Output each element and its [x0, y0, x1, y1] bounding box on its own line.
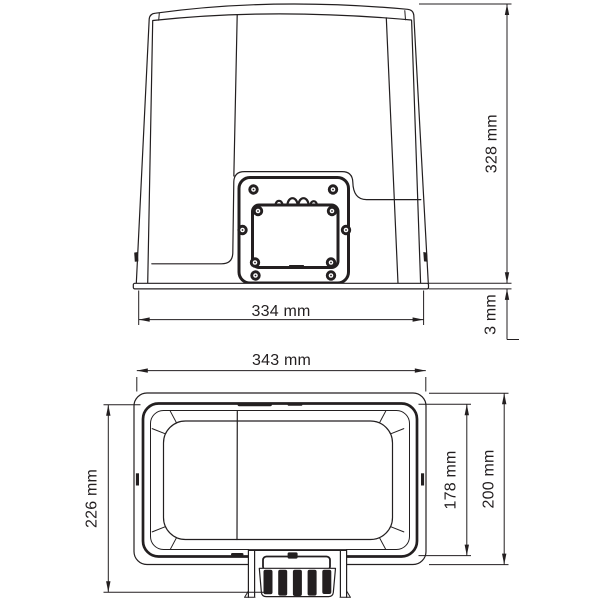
- dim-base-thickness: 3 mm: [429, 289, 520, 340]
- arrow-down-icon: [505, 272, 509, 283]
- screw-icon: [250, 270, 260, 280]
- screw-icon: [328, 184, 338, 194]
- vent-slot: [238, 403, 273, 407]
- side-tab-left: [134, 252, 138, 262]
- housing-lid-edge: [153, 14, 412, 21]
- arrow-left-icon: [139, 317, 150, 321]
- screw-icon: [341, 225, 351, 235]
- dim-label-top-width: 343 mm: [252, 352, 311, 369]
- arrow-right-icon: [413, 317, 424, 321]
- vent-slot: [231, 553, 244, 556]
- bracket-notch: [288, 552, 298, 558]
- lid-corner-left: [159, 13, 160, 20]
- arrow-up-icon: [505, 4, 509, 15]
- dim-top-width: 343 mm: [137, 352, 426, 391]
- screw-icon: [326, 257, 336, 267]
- lid-corner-right: [405, 11, 406, 20]
- arrow-down-icon: [465, 545, 469, 556]
- dim-front-width: 334 mm: [139, 291, 424, 326]
- side-tab-right: [423, 252, 427, 262]
- housing-wall-inner-left: [148, 21, 153, 284]
- screw-icon: [248, 184, 258, 194]
- dim-label-front-width: 334 mm: [252, 303, 311, 320]
- dim-label-depth-overall: 226 mm: [84, 469, 101, 528]
- side-tab-left: [136, 473, 139, 485]
- screw-icon: [253, 206, 263, 216]
- dim-label-base-thickness: 3 mm: [483, 294, 500, 335]
- screw-icon: [326, 270, 336, 280]
- arrow-down-icon: [106, 581, 110, 592]
- technical-drawing-page: 334 mm 328 mm 3 mm: [0, 0, 600, 600]
- arrow-left-icon: [137, 368, 148, 372]
- screw-icon: [327, 206, 337, 216]
- screw-icon: [250, 257, 260, 267]
- cover-rim: [143, 404, 417, 557]
- base-plate: [133, 283, 428, 289]
- screw-icon: [237, 225, 247, 235]
- dim-front-height: 328 mm: [419, 4, 512, 283]
- dim-depth-cover: 200 mm: [429, 393, 509, 564]
- side-tab-right: [421, 473, 424, 485]
- dim-label-depth-body: 178 mm: [443, 451, 460, 510]
- arrow-up-icon: [465, 404, 469, 415]
- vent-slot: [288, 403, 303, 406]
- technical-drawing-canvas: 334 mm 328 mm 3 mm: [0, 0, 600, 600]
- arrow-down-icon: [502, 554, 506, 565]
- top-view: 343 mm 226 mm 178 mm 200 mm: [84, 352, 509, 600]
- front-view: 334 mm 328 mm 3 mm: [133, 4, 519, 340]
- cover-seam-left: [234, 15, 237, 176]
- arrow-up-icon: [106, 405, 110, 416]
- dim-label-depth-cover: 200 mm: [481, 450, 498, 509]
- mounting-plate: [253, 205, 339, 268]
- arrow-up-icon: [505, 289, 509, 300]
- cover-seam-right: [386, 18, 398, 284]
- arrow-right-icon: [415, 368, 426, 372]
- arrow-up-icon: [502, 393, 506, 404]
- dim-label-front-height: 328 mm: [484, 114, 501, 173]
